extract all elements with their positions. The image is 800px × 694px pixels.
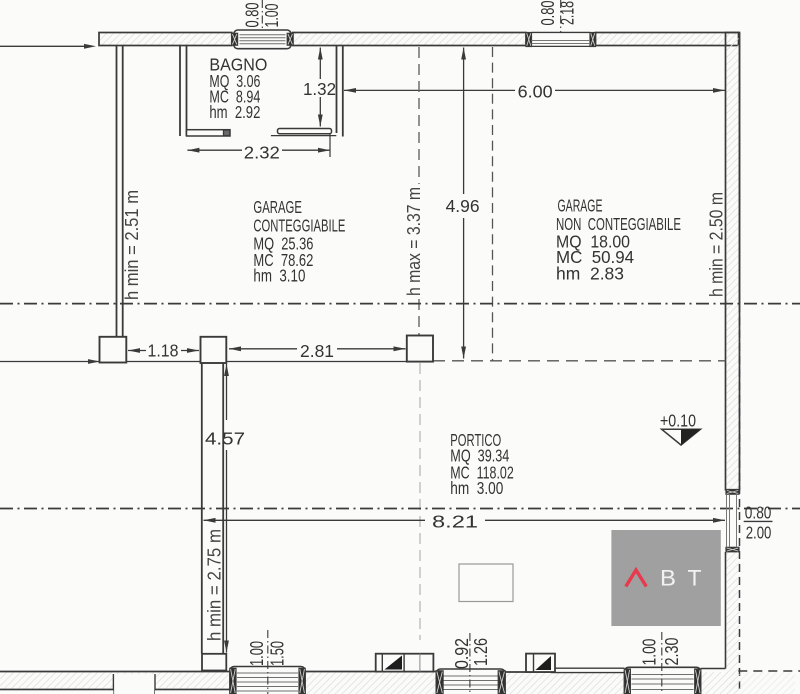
svg-text:B: B xyxy=(660,566,676,591)
svg-text:0.80: 0.80 xyxy=(243,3,263,28)
svg-text:h min = 2.51 m: h min = 2.51 m xyxy=(122,190,142,300)
svg-text:8.21: 8.21 xyxy=(432,512,478,532)
svg-text:1.18: 1.18 xyxy=(148,340,179,360)
svg-text:2.30: 2.30 xyxy=(662,638,682,666)
svg-text:1.00: 1.00 xyxy=(640,639,660,666)
svg-text:CONTEGGIABILE: CONTEGGIABILE xyxy=(253,216,345,236)
svg-text:h min = 2.75 m: h min = 2.75 m xyxy=(205,529,225,641)
svg-text:GARAGE: GARAGE xyxy=(558,195,603,215)
svg-text:1.26: 1.26 xyxy=(471,638,491,666)
svg-text:+0.10: +0.10 xyxy=(660,410,696,430)
svg-text:T: T xyxy=(688,566,702,591)
svg-text:1.50: 1.50 xyxy=(267,641,287,666)
svg-text:1.00: 1.00 xyxy=(262,4,282,28)
svg-text:hm 3.00: hm 3.00 xyxy=(450,478,503,498)
svg-text:0.80: 0.80 xyxy=(745,503,772,523)
svg-text:2.81: 2.81 xyxy=(300,341,334,361)
svg-text:h max = 3.37 m: h max = 3.37 m xyxy=(404,187,424,296)
svg-text:1.32: 1.32 xyxy=(303,79,336,99)
svg-text:0.80: 0.80 xyxy=(538,1,558,26)
svg-text:GARAGE: GARAGE xyxy=(253,197,302,217)
svg-text:4.96: 4.96 xyxy=(446,196,480,216)
svg-text:hm 2.83: hm 2.83 xyxy=(556,263,624,283)
svg-text:hm 2.92: hm 2.92 xyxy=(209,102,260,122)
svg-text:4.57: 4.57 xyxy=(205,428,245,448)
svg-text:h min = 2.50 m: h min = 2.50 m xyxy=(707,192,727,297)
svg-text:hm 3.10: hm 3.10 xyxy=(253,266,305,286)
svg-text:0.92: 0.92 xyxy=(452,638,472,669)
svg-text:2.00: 2.00 xyxy=(746,523,772,543)
svg-text:1.00: 1.00 xyxy=(247,641,267,666)
svg-text:2.32: 2.32 xyxy=(244,142,280,162)
svg-text:2.18: 2.18 xyxy=(558,1,578,25)
svg-text:6.00: 6.00 xyxy=(518,81,553,101)
